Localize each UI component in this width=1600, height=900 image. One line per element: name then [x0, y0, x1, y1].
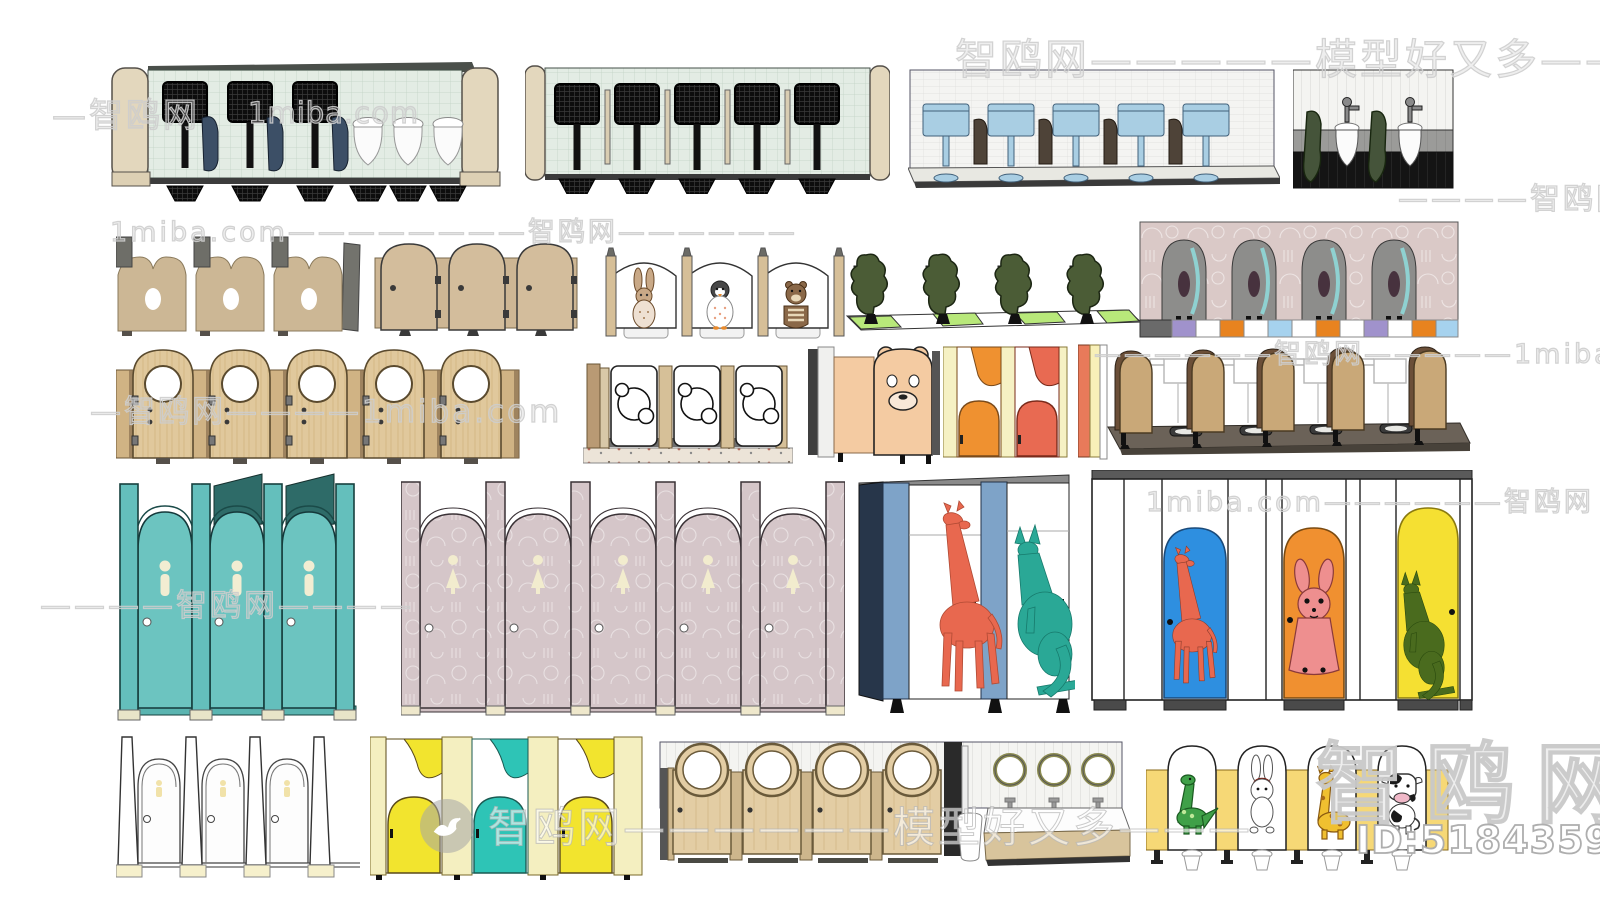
partition-cartoon-animals: [1146, 738, 1462, 874]
doors-wood-porthole: [116, 346, 522, 470]
brand-bird-logo: [420, 799, 474, 853]
partition-koala-cutout: [583, 360, 793, 466]
stalls-porthole-with-sinks: [658, 738, 1136, 876]
partition-teal-arch-doors: [116, 470, 392, 722]
partition-tan-arched-doors: [371, 226, 581, 336]
penguin-illustration: [707, 281, 733, 330]
partition-giraffe-kangaroo: [853, 473, 1075, 717]
partition-white-outline: [116, 733, 362, 881]
urinal-wall-mint-sensor: [110, 60, 510, 205]
round-mirrors: [995, 755, 1113, 785]
partition-yellow-teal-wave: [370, 733, 645, 881]
bird-icon: [428, 807, 466, 845]
partition-green-trees: [843, 236, 1143, 336]
cistern-wall-blue: [908, 66, 1280, 188]
partition-tan-notched: [116, 235, 366, 337]
partition-color-doors-animals: [1090, 470, 1474, 716]
urinal-wall-pink-arches: [1138, 220, 1462, 340]
partition-mauve-arch-doors: [401, 476, 845, 718]
bear-face-door: [874, 347, 932, 455]
partition-bear-face: [808, 343, 942, 467]
teal-doors: [135, 506, 339, 708]
urinal-wall-mint-five: [525, 62, 890, 194]
partition-white-animal-arcs: [598, 228, 848, 342]
urinal-wall-tri-band: [1293, 66, 1458, 194]
partition-orange-coral-wave: [943, 343, 1069, 463]
trash-bin: [958, 813, 982, 861]
sink-counter: [984, 808, 1130, 833]
model-collage-canvas: 智鸥网—————模型好又多———— —智鸥网 1miba.com 1miba.c…: [0, 0, 1600, 900]
squat-row-wood-arches: [1078, 343, 1472, 463]
